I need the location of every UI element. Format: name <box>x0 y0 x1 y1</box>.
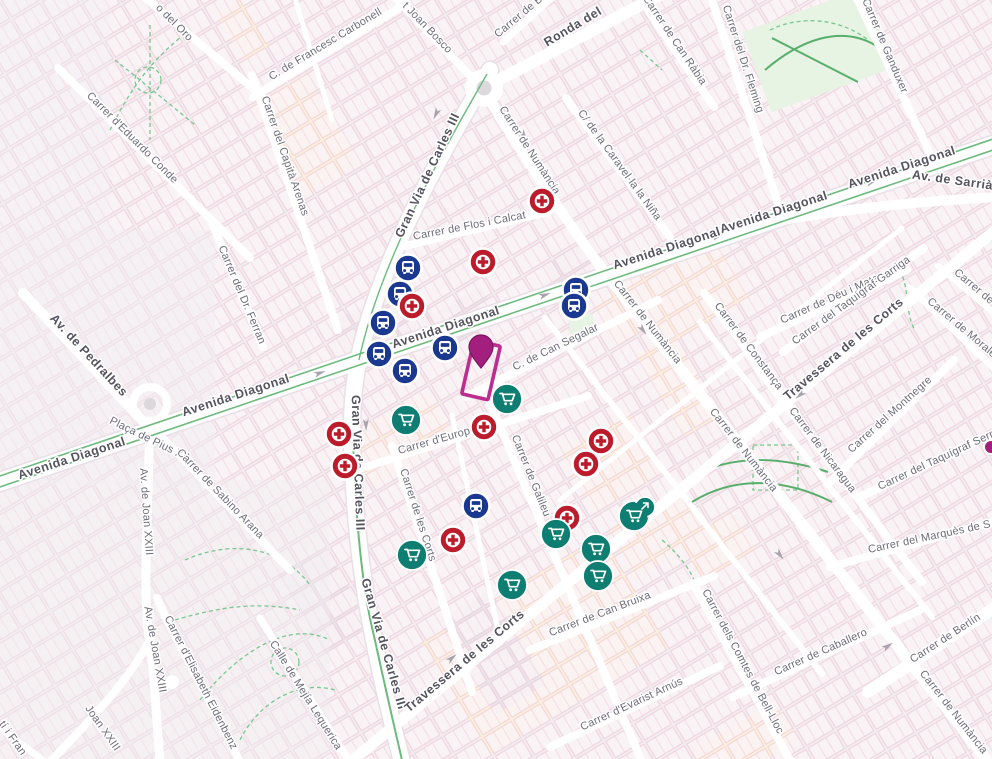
supermarket-marker[interactable] <box>581 534 611 564</box>
pharmacy-marker[interactable] <box>326 421 353 448</box>
bus-stop-marker[interactable] <box>366 341 393 368</box>
bus-stop-marker[interactable] <box>395 255 422 282</box>
bus-icon <box>402 261 414 274</box>
bus-stop-marker[interactable] <box>432 335 459 362</box>
supermarket-marker[interactable] <box>492 384 522 414</box>
supermarket-marker[interactable] <box>497 570 527 600</box>
medical-cross-icon <box>338 459 353 474</box>
bus-icon <box>399 364 411 377</box>
medical-cross-icon <box>579 457 594 472</box>
bus-stop-marker[interactable] <box>561 293 588 320</box>
medical-cross-icon <box>476 255 491 270</box>
medical-cross-icon <box>405 299 420 314</box>
bus-icon <box>568 299 580 312</box>
medical-cross-icon <box>446 533 461 548</box>
supermarket-marker[interactable] <box>583 561 613 591</box>
pharmacy-marker[interactable] <box>470 249 497 276</box>
bus-stop-marker[interactable] <box>463 493 490 520</box>
pharmacy-marker[interactable] <box>399 293 426 320</box>
partial-place-marker[interactable] <box>984 440 992 454</box>
pharmacy-marker[interactable] <box>332 453 359 480</box>
bus-icon <box>470 499 482 512</box>
pharmacy-marker[interactable] <box>440 527 467 554</box>
bus-stop-marker[interactable] <box>392 358 419 385</box>
supermarket-marker[interactable] <box>397 540 427 570</box>
supermarket-marker[interactable] <box>391 405 421 435</box>
supermarket-marker[interactable] <box>541 519 571 549</box>
medical-cross-icon <box>332 427 347 442</box>
bus-stop-marker[interactable] <box>370 310 397 337</box>
bus-icon <box>377 316 389 329</box>
pharmacy-marker[interactable] <box>471 414 498 441</box>
pharmacy-marker[interactable] <box>573 451 600 478</box>
bus-icon <box>373 347 385 360</box>
medical-cross-icon <box>477 420 492 435</box>
medical-cross-icon <box>535 194 550 209</box>
pharmacy-marker[interactable] <box>529 188 556 215</box>
bus-icon <box>439 341 451 354</box>
map-canvas[interactable]: Avenida DiagonalAvenida DiagonalAvenida … <box>0 0 992 759</box>
medical-cross-icon <box>594 434 609 449</box>
